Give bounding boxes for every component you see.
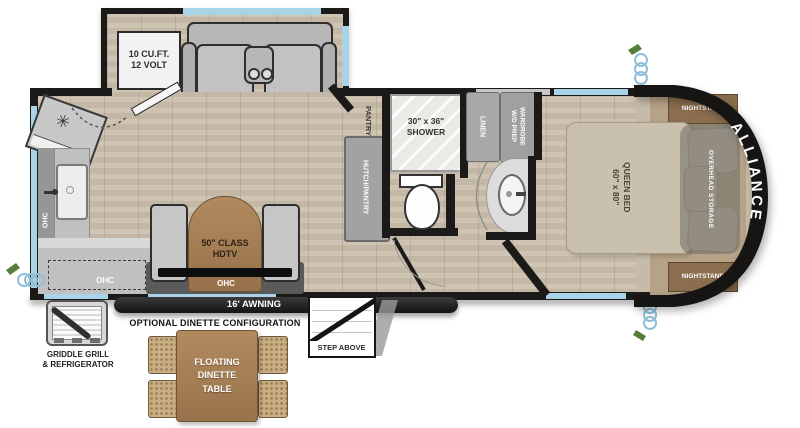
faucet-icon [52, 189, 58, 195]
floorplan-canvas: 10 CU.FT. 12 VOLT NIGHTSTAND NIGHTSTAND … [0, 0, 800, 428]
dinette-chair [148, 380, 178, 418]
nightstand-bottom-label: NIGHTSTAND [668, 262, 738, 292]
step-label: STEP ABOVE [310, 341, 373, 355]
griddle-label: GRIDDLE GRILL & REFRIGERATOR [8, 348, 148, 372]
hutch-pantry-label: HUTCH/PANTRY [344, 136, 386, 238]
dinette-chair [148, 336, 178, 374]
floating-dinette-label: FLOATING DINETTE TABLE [176, 338, 258, 414]
shower-label: 30" x 36" SHOWER [390, 112, 462, 142]
overhead-storage-label: OVERHEAD STORAGE [680, 124, 740, 254]
refrigerator-label: 10 CU.FT. 12 VOLT [117, 38, 181, 82]
cord-plug-icon [633, 330, 646, 341]
dinette-chair [258, 336, 288, 374]
wardrobe-label: WARDROBE W/D PREP [500, 92, 534, 160]
tv-label: 50" CLASS HDTV [186, 234, 264, 264]
nightstand-top-label: NIGHTSTAND [668, 94, 738, 124]
vanity-drain [506, 191, 512, 197]
awning-label: 16' AWNING [214, 298, 294, 312]
bedroom-bottom-window [546, 293, 626, 299]
cord-plug-icon [628, 44, 642, 55]
kitchen-counter-bottom-top-edge [38, 238, 152, 248]
dinette-chair [258, 380, 288, 418]
cupholder-icon [248, 68, 260, 80]
linen-label: LINEN [466, 92, 498, 160]
queen-bed-label: QUEEN BED 60" x 80" [596, 128, 646, 246]
cord-plug-icon [6, 263, 20, 275]
wall-right-of-wardrobe [534, 92, 542, 160]
cupholder-icon [261, 68, 273, 80]
bath-wall-right-of-toilet [446, 174, 455, 236]
power-cord-icon [635, 54, 647, 84]
sink-drain [66, 186, 74, 194]
bath-wall-left [382, 92, 390, 238]
entry-step: STEP ABOVE [308, 296, 376, 358]
griddle-foot [72, 338, 82, 343]
slideout-top-window [183, 8, 321, 15]
ohc-bottom-label: OHC [84, 274, 126, 288]
wall-right-of-vanity [528, 156, 536, 240]
ohc-tv-label: OHC [202, 277, 250, 291]
wall-under-vanity [486, 232, 536, 240]
griddle-foot [54, 338, 64, 343]
burner-icon: ✳ [53, 110, 73, 134]
power-cord-icon [644, 301, 656, 329]
bedroom-top-window [554, 89, 628, 95]
griddle-grill [46, 300, 108, 346]
griddle-foot [90, 338, 100, 343]
vanity-faucet-icon [516, 192, 526, 196]
toilet-bowl [404, 184, 440, 230]
wall-top-left-stub [30, 88, 112, 96]
slideout-right-window [342, 26, 349, 86]
ohc-left-label: OHC [39, 196, 53, 244]
tv-screen [158, 268, 292, 277]
optional-dinette-title: OPTIONAL DINETTE CONFIGURATION [122, 317, 308, 331]
